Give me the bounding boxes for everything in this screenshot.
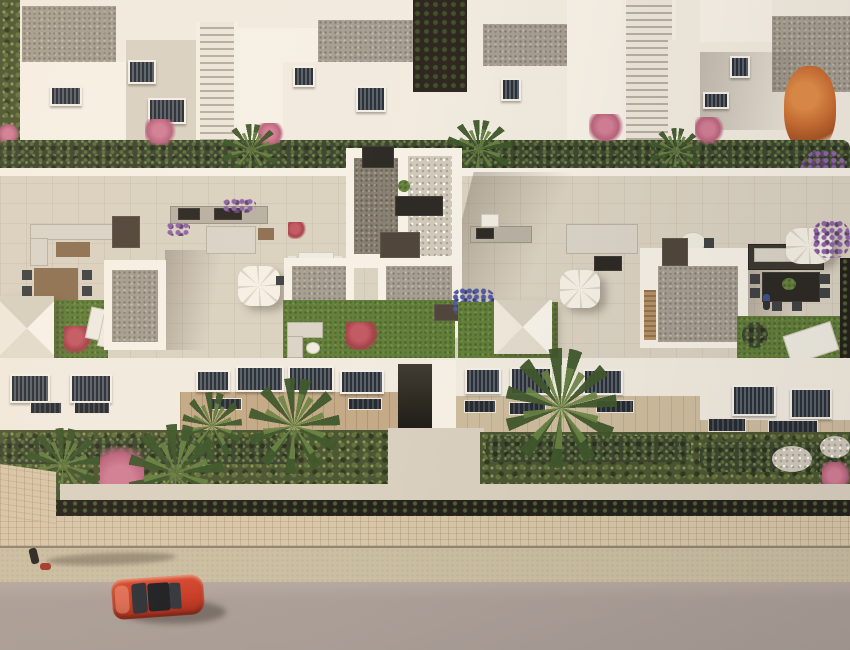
louvered-window [732,385,776,416]
palm-tree [248,378,340,474]
upper-house-6-top [700,0,772,42]
louvered-window [10,374,50,403]
chair [750,288,760,298]
stone-boundary-wall [0,516,850,546]
window [50,86,82,106]
rooftop-unit [362,146,394,168]
sofa-set [566,224,638,254]
chair [820,274,830,284]
person-standing [763,294,770,310]
small-table [481,214,499,227]
louvered-window [340,370,384,394]
dog [40,563,51,570]
car-hood-highlight [114,585,130,614]
purple-planter [166,222,190,236]
chair [704,238,714,248]
chair [22,270,32,280]
vent-window [30,402,62,414]
cast-shadow [165,250,225,350]
coffee-table [594,256,622,271]
chair [82,270,92,280]
window [356,86,386,112]
chair [750,274,760,284]
grill [476,228,494,239]
pink-flowers [145,119,177,145]
vent-window [74,402,110,414]
right-edge-trellis [840,258,850,362]
red-flower-bush [346,322,380,350]
bougainvillea-purple [812,220,850,258]
window [703,92,729,109]
roof-gravel-3 [483,24,567,66]
grill [178,208,200,220]
white-pebble-mound [820,436,850,458]
window [293,66,315,87]
wood-louvre-panel [644,290,656,340]
planting-strip [0,500,850,517]
garden-sofa [287,336,303,358]
planted-alley [413,0,467,92]
round-parasol [560,270,600,308]
stair-recess [398,364,432,430]
coffee-table [56,242,90,257]
car-rear-window [169,583,182,609]
chair [820,288,830,298]
side-table [258,228,274,240]
table-centerpiece [782,278,796,290]
sofa-set [206,226,256,254]
louvered-window [790,388,832,419]
square-parasol [0,296,54,360]
rooftop-unit [395,196,443,216]
aerial-render-scene [0,0,850,650]
roof-gravel-1 [22,6,116,62]
car-roof [147,582,171,611]
stair-side-wall [432,360,456,432]
chair [792,302,802,311]
rooftop-box [380,232,420,258]
car-windshield [131,582,148,614]
upper-path [60,484,850,501]
red-car [111,574,206,620]
palm-tree-large [505,348,617,468]
red-potted-flowers [288,222,306,239]
tower-gravel-top [112,270,158,342]
planter-box [112,216,140,248]
window [128,60,156,84]
vent-window [348,398,382,410]
round-parasol [238,266,280,306]
square-parasol [494,300,552,354]
louvered-window [70,374,112,403]
pink-flowers [589,114,625,141]
vent-window [708,418,746,432]
purple-planter [222,198,256,213]
tower-gravel-top [658,266,738,342]
louvered-window [465,368,501,394]
chair [22,286,32,296]
chair [772,302,782,311]
small-tree [742,322,768,348]
vent-window [464,400,496,413]
staircase-left [196,22,238,142]
sofa-set [30,238,48,266]
potted-plant [398,180,410,192]
planter-box [662,238,688,266]
louvered-window [196,370,230,392]
small-table [306,342,320,354]
window [730,56,750,78]
white-pebble-mound [772,446,812,472]
stone-wall-corner [0,464,56,524]
chair [82,286,92,296]
window [501,78,521,101]
